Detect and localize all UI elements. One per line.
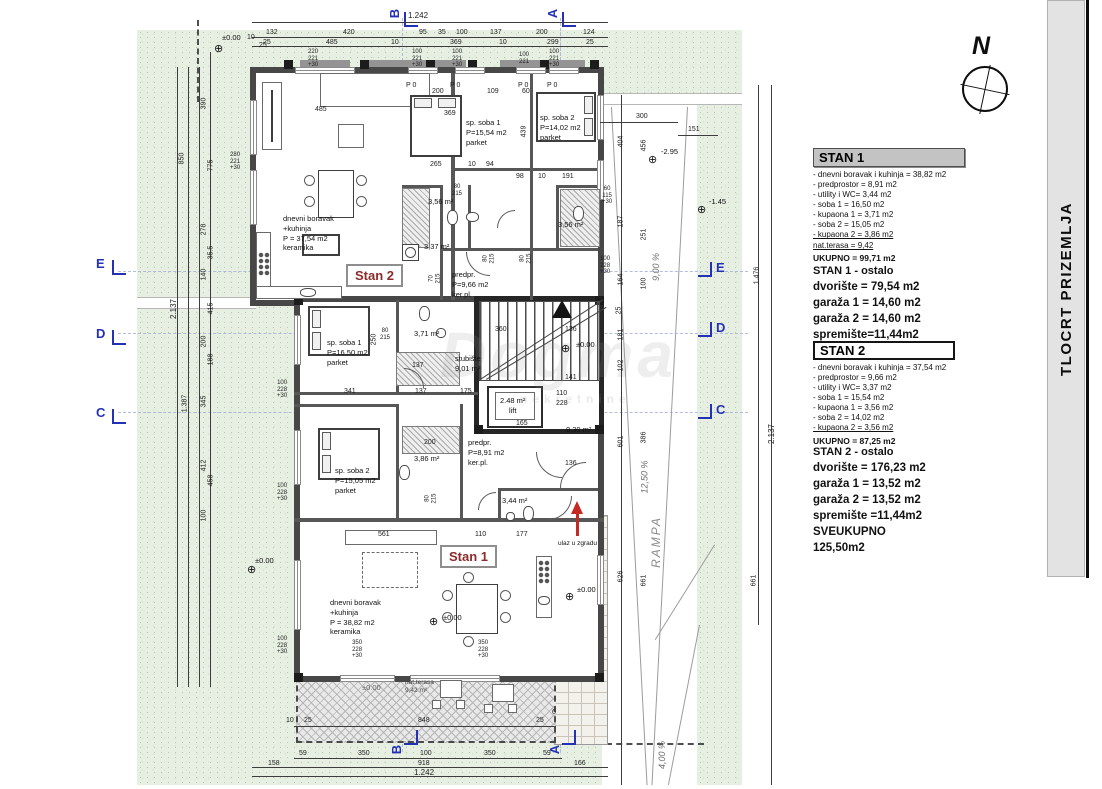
toilet xyxy=(447,210,458,225)
column xyxy=(294,673,303,682)
stan2-total: UKUPNO = 87,25 m2 xyxy=(813,436,1033,446)
stan1-item: - dnevni boravak i kuhinja = 38,82 m2 xyxy=(813,170,1033,180)
parapet-stack: 100221+30 xyxy=(549,49,559,69)
dim-label: 2.137 xyxy=(170,299,178,319)
chair xyxy=(463,636,474,647)
dim-label: 102 xyxy=(617,360,624,372)
partition-wall xyxy=(498,488,501,521)
pillow xyxy=(584,118,593,136)
door-size-stack: 70215 xyxy=(429,273,442,283)
room-label-bedroom2-stan2: sp. soba 2 P=14,02 m2 parket xyxy=(540,113,581,142)
dim-label: 251 xyxy=(640,229,647,241)
kitchen-counter xyxy=(256,286,342,299)
chair xyxy=(442,590,453,601)
room-label-bedroom1-stan1: sp. soba 1 P=16,50 m2 parket xyxy=(327,338,368,367)
north-label: N xyxy=(972,32,990,61)
level-value: -1.45 xyxy=(709,197,726,206)
section-bracket xyxy=(112,330,126,345)
door-size-stack: 80215 xyxy=(483,253,496,263)
slope-label-400: 4,00 % xyxy=(657,741,667,769)
dim-label: 98 xyxy=(516,173,524,180)
dim-line xyxy=(600,122,678,123)
chair xyxy=(304,175,315,186)
stove-burners xyxy=(538,560,550,584)
dim-label: 137 xyxy=(412,362,424,369)
dim-label: 250 xyxy=(370,334,377,346)
chair xyxy=(463,572,474,583)
window xyxy=(250,170,257,225)
section-bracket xyxy=(698,262,712,277)
stan2-item: - utility i WC= 3,37 m2 xyxy=(813,383,1033,393)
window xyxy=(294,430,301,485)
pillow xyxy=(584,96,593,114)
dim-label: 59 xyxy=(543,750,551,757)
stan2-ostalo-item: SVEUKUPNO xyxy=(813,526,1033,538)
dim-label: 10 xyxy=(468,161,476,168)
sheet-title: TLOCRT PRIZEMLJA xyxy=(1058,202,1075,376)
dim-line xyxy=(188,67,189,687)
window xyxy=(294,560,301,630)
dim-label: 299 xyxy=(547,39,559,46)
parapet-stack: 100221+30 xyxy=(412,49,422,69)
parapet-stack: 60115+30 xyxy=(602,186,612,206)
toilet xyxy=(419,306,430,321)
dim-label: 175 xyxy=(460,388,472,395)
level-symbol: ⊕ xyxy=(648,155,657,166)
dim-line xyxy=(294,726,556,727)
dim-label: 100 xyxy=(456,29,468,36)
dim-label: 300 xyxy=(636,113,648,120)
level-symbol: ⊕ xyxy=(561,344,570,355)
parapet-stack: 100221 xyxy=(519,52,529,65)
dim-label: 60 xyxy=(522,88,530,95)
dim-label: 191 xyxy=(562,173,574,180)
window xyxy=(597,95,604,140)
column xyxy=(590,60,599,69)
dim-label: 137 xyxy=(415,388,427,395)
stan1-ostalo-title: STAN 1 - ostalo xyxy=(813,265,1033,277)
section-marker-d-left: D xyxy=(96,326,105,341)
stan2-ostalo-title: STAN 2 - ostalo xyxy=(813,446,1033,458)
title-bar-edge-line xyxy=(1086,0,1089,578)
dim-label: 94 xyxy=(486,161,494,168)
washer-drum xyxy=(405,247,416,258)
chair xyxy=(304,196,315,207)
column xyxy=(595,425,604,434)
ramp-label: RAMPA xyxy=(649,516,663,568)
door-size-stack: 80215 xyxy=(380,328,390,341)
dim-label: 110 xyxy=(475,531,486,538)
stan1-item: - utility i WC= 3,44 m2 xyxy=(813,190,1033,200)
level-value: ±0.00 xyxy=(362,683,381,692)
room-label-hall-stan2: predpr. P=9,66 m2 ker.pl. xyxy=(452,270,488,299)
coffee-table xyxy=(338,124,364,148)
door-size-stack: 80215 xyxy=(520,253,533,263)
dim-label: 10 xyxy=(247,34,255,41)
dim-label: 177 xyxy=(516,531,528,538)
dim-label: 341 xyxy=(344,388,356,395)
dim-label: 100 xyxy=(200,510,207,522)
dim-label: 1.476 xyxy=(753,267,760,285)
dim-line xyxy=(758,85,759,625)
path-band-right xyxy=(602,93,742,105)
sofa xyxy=(345,530,437,545)
dim-label: 420 xyxy=(343,29,355,36)
toilet xyxy=(523,506,534,521)
stan2-panel: STAN 2 - dnevni boravak i kuhinja = 37,5… xyxy=(813,341,1033,554)
partition-wall xyxy=(530,73,533,250)
stan1-ostalo-item: spremište=11,44m2 xyxy=(813,329,1033,341)
dim-label: 166 xyxy=(574,760,586,767)
entrance-arrow-head xyxy=(571,501,583,514)
stan2-item: - soba 2 = 14,02 m2 xyxy=(813,413,1033,423)
dim-label: 25 xyxy=(536,717,544,724)
dim-label: 200 xyxy=(200,336,207,348)
stan2-ostalo-item: spremište =11,44m2 xyxy=(813,510,1033,522)
dim-label: 661 xyxy=(640,575,647,587)
room-label-bath2-stan2: 3,56 m² xyxy=(558,220,583,230)
dim-label: 151 xyxy=(688,126,700,133)
window xyxy=(597,555,604,605)
parapet-stack: 100228+30 xyxy=(600,256,610,276)
dim-label: 1.242 xyxy=(408,12,428,20)
toilet xyxy=(573,206,584,221)
dim-label: 35.5 xyxy=(207,246,214,260)
dim-label: 661 xyxy=(750,575,757,587)
patio-chair xyxy=(456,700,465,709)
dining-table xyxy=(456,584,498,634)
sill-stack: 350228+30 xyxy=(352,640,362,660)
pillow xyxy=(322,455,331,473)
section-marker-e-right: E xyxy=(716,260,725,275)
window xyxy=(294,315,301,365)
dim-label: 228 xyxy=(556,400,568,407)
dim-label: 200 xyxy=(432,88,444,95)
pillow xyxy=(414,98,432,108)
level-symbol: ⊕ xyxy=(697,205,706,216)
pillow xyxy=(438,98,456,108)
room-label-hall-stan1: predpr. P=8,91 m2 ker.pl. xyxy=(468,438,504,467)
stan1-item: - kupaona 1 = 3,71 m2 xyxy=(813,210,1033,220)
stan2-ostalo-item: dvorište = 176,23 m2 xyxy=(813,462,1033,474)
dim-label: 165 xyxy=(516,420,528,427)
partition-wall xyxy=(451,168,598,171)
column xyxy=(474,425,483,434)
dim-label: 775 xyxy=(207,160,214,172)
pillow xyxy=(312,332,321,350)
dim-line xyxy=(210,52,211,687)
pillow xyxy=(312,310,321,328)
sill-stack: 350228+30 xyxy=(478,640,488,660)
dim-label: 386 xyxy=(640,432,647,444)
p0-label: P 0 xyxy=(406,82,416,89)
column xyxy=(360,60,369,69)
room-label-bath1-stan2: 3,56 m² xyxy=(428,197,453,207)
section-bracket xyxy=(112,409,126,424)
dim-label: 35 xyxy=(438,29,446,36)
parapet-stack: 100228+30 xyxy=(277,636,287,656)
dim-label: 140 xyxy=(200,269,207,281)
dim-label: 25 xyxy=(615,307,622,315)
level-symbol: ⊕ xyxy=(247,565,256,576)
stan2-item: - soba 1 = 15,54 m2 xyxy=(813,393,1033,403)
stan1-item: - soba 1 = 16,50 m2 xyxy=(813,200,1033,210)
room-label-bedroom1-stan2: sp. soba 1 P=15,54 m2 parket xyxy=(466,118,507,147)
partition-wall xyxy=(498,488,598,491)
stan2-item: - dnevni boravak i kuhinja = 37,54 m2 xyxy=(813,363,1033,373)
dim-label: 350 xyxy=(484,750,496,757)
level-value: ±0.00 xyxy=(577,585,596,594)
rug xyxy=(362,552,418,588)
room-label-living-stan1: dnevni boravak +kuhinja P = 38,82 m2 ker… xyxy=(330,598,381,637)
room-label-living-stan2: dnevni boravak +kuhinja P = 37,54 m2 ker… xyxy=(283,214,334,253)
stan1-item: - predprostor = 8,91 m2 xyxy=(813,180,1033,190)
level-value: ±0.00 xyxy=(255,556,274,565)
section-marker-c-left: C xyxy=(96,405,105,420)
column xyxy=(284,60,293,69)
dim-line xyxy=(252,46,608,47)
partition-wall xyxy=(294,392,478,395)
dim-label: 10 xyxy=(391,39,399,46)
dim-label: 59 xyxy=(299,750,307,757)
dim-label: 390 xyxy=(200,98,207,110)
stan1-item: - kupaona 2 = 3,86 m2 xyxy=(813,230,1033,240)
room-label-bedroom2-stan1: sp. soba 2 P=15,05 m2 parket xyxy=(335,466,376,495)
room-label-stairs: stubište 9,01 m² xyxy=(455,354,481,374)
dim-label: 137 xyxy=(490,29,502,36)
sheet-title-bar: TLOCRT PRIZEMLJA xyxy=(1047,0,1085,577)
entrance-label: ulaz u zgradu xyxy=(558,540,597,548)
path-band-left xyxy=(137,297,256,309)
stan1-item: - soba 2 = 15,05 m2 xyxy=(813,220,1033,230)
door-size-stack: 80215 xyxy=(452,184,462,197)
dim-label: 10 xyxy=(499,39,507,46)
dim-label: 369 xyxy=(444,110,456,117)
chair xyxy=(500,590,511,601)
dim-label: 265 xyxy=(430,161,442,168)
dim-line xyxy=(678,135,718,136)
level-value: ±0.00 xyxy=(443,613,462,622)
dim-label: 458 xyxy=(207,475,214,487)
level-value: -2.95 xyxy=(661,147,678,156)
section-bracket xyxy=(112,260,126,275)
room-label-wc-stan1: 3,44 m² xyxy=(502,496,527,506)
section-marker-a-top: A xyxy=(545,9,560,18)
partition-wall xyxy=(460,404,463,520)
dim-label: 439 xyxy=(520,126,527,138)
kitchen-sink xyxy=(538,596,550,605)
dim-label: 200 xyxy=(536,29,548,36)
window xyxy=(516,67,546,74)
stan1-ostalo-item: garaža 1 = 14,60 m2 xyxy=(813,297,1033,309)
dim-label: 456 xyxy=(640,140,647,152)
dim-label: 110 xyxy=(556,390,567,397)
dim-label: 360 xyxy=(495,326,507,333)
stan2-item: - predprostor = 9,66 m2 xyxy=(813,373,1033,383)
stan1-item: nat.terasa = 9,42 xyxy=(813,241,1033,251)
slope-label-1250: 12,50 % xyxy=(640,460,650,493)
patio-table xyxy=(440,680,462,698)
apartment-label-stan2: Stan 2 xyxy=(346,264,403,287)
partition-wall xyxy=(556,185,559,248)
door-size-stack: 80215 xyxy=(425,493,438,503)
dim-label: 850 xyxy=(178,153,185,165)
level-value: ±0.00 xyxy=(576,340,595,349)
parapet-stack: 280221+30 xyxy=(230,152,240,172)
dim-label: 100 xyxy=(640,278,647,290)
dim-label: 10 xyxy=(286,717,294,724)
p0-label: P 0 xyxy=(547,82,557,89)
section-bracket xyxy=(562,12,576,27)
chair xyxy=(356,175,367,186)
entrance-arrow-stem xyxy=(576,512,579,536)
dining-table xyxy=(318,170,354,218)
section-marker-c-right: C xyxy=(716,402,725,417)
dim-label: 485 xyxy=(326,39,338,46)
dim-label: 601 xyxy=(617,436,624,448)
stan2-ostalo-item: garaža 2 = 13,52 m2 xyxy=(813,494,1033,506)
partition-wall xyxy=(396,404,399,518)
section-marker-b-top: B xyxy=(387,9,402,18)
parapet-stack: 220221+30 xyxy=(308,49,318,69)
section-marker-b-bottom: B xyxy=(389,745,404,754)
dim-label: 132 xyxy=(266,29,278,36)
dim-label: 6 xyxy=(552,709,556,716)
p0-label: P 0 xyxy=(450,82,460,89)
patio-chair xyxy=(484,704,493,713)
room-label-bath2-stan1: 3,86 m² xyxy=(414,454,439,464)
patio-chair xyxy=(508,704,517,713)
parapet-stack: 100228+30 xyxy=(277,380,287,400)
dim-label: 626 xyxy=(617,571,624,583)
dim-label: 561 xyxy=(378,531,390,538)
stan1-ostalo-item: dvorište = 79,54 m2 xyxy=(813,281,1033,293)
dim-label: 404 xyxy=(617,136,624,148)
level-value: ±0.00 xyxy=(222,33,241,42)
dim-label: 2.137 xyxy=(768,424,776,444)
stan2-item: - kupaona 1 = 3,56 m2 xyxy=(813,403,1033,413)
window xyxy=(250,100,257,155)
section-bracket xyxy=(404,730,418,745)
section-bracket xyxy=(562,730,576,745)
dim-label: 369 xyxy=(450,39,462,46)
floor-plan-sheet: Dogma nekretnine dnevni boravak +kuhinja… xyxy=(0,0,1102,789)
dim-label: 200 xyxy=(424,439,436,446)
wardrobe-handle xyxy=(271,90,273,142)
dim-label: 25 xyxy=(259,42,267,49)
sink xyxy=(466,212,479,222)
dim-label: 412 xyxy=(200,460,207,472)
patio-chair xyxy=(432,700,441,709)
bath-tile-hatch xyxy=(402,188,430,248)
room-label-utility-stan2: 3,37 m² xyxy=(424,242,449,252)
dim-label: 350 xyxy=(358,750,370,757)
column xyxy=(595,673,604,682)
stan2-ostalo-item: 125,50m2 xyxy=(813,542,1033,554)
kitchen-sink xyxy=(300,288,316,297)
chair xyxy=(500,612,511,623)
patio-table xyxy=(492,684,514,702)
slope-label-900: 9,00 % xyxy=(651,253,661,281)
dim-label: 345 xyxy=(200,396,207,408)
dim-label: 141 xyxy=(565,374,577,381)
section-bracket xyxy=(698,322,712,337)
dim-label: 95 xyxy=(419,29,427,36)
dim-label: 1.387 xyxy=(181,395,188,413)
dim-label: 1.242 xyxy=(414,769,434,777)
section-marker-d-right: D xyxy=(716,320,725,335)
stan1-total: UKUPNO = 99,71 m2 xyxy=(813,253,1033,263)
dim-label: 10 xyxy=(538,173,546,180)
stan2-title: STAN 2 xyxy=(813,341,955,360)
stan1-title: STAN 1 xyxy=(813,148,965,167)
dim-label: 25 xyxy=(586,39,594,46)
dim-label: 485 xyxy=(315,106,327,113)
dim-label: 164 xyxy=(617,274,624,286)
dim-line xyxy=(252,37,608,38)
pillow xyxy=(322,432,331,450)
room-label-terrace: nat.terasa 9,42 m² xyxy=(405,679,434,696)
room-label-open-area: 8,30 m² xyxy=(566,425,591,435)
dim-line xyxy=(252,22,608,23)
dim-label: 278 xyxy=(200,224,207,236)
dim-label: 181 xyxy=(617,329,624,341)
dim-line xyxy=(294,758,562,759)
dim-label: 415 xyxy=(207,303,214,315)
partition-wall xyxy=(294,404,399,407)
room-label-lift: 2.48 m² lift xyxy=(500,396,525,416)
dim-label: 918 xyxy=(418,760,430,767)
parapet-stack: 100228+30 xyxy=(277,483,287,503)
level-symbol: ⊕ xyxy=(565,592,574,603)
toilet xyxy=(399,465,410,480)
room-label-bath1-stan1: 3,71 m² xyxy=(414,329,439,339)
dim-line xyxy=(199,67,200,687)
dim-label: 136 xyxy=(565,460,577,467)
dim-label: 100 xyxy=(420,750,432,757)
level-symbol: ⊕ xyxy=(429,617,438,628)
dim-label: 187 xyxy=(617,216,624,228)
level-symbol: ⊕ xyxy=(214,44,223,55)
dim-label: 848 xyxy=(418,717,430,724)
section-marker-e-left: E xyxy=(96,256,105,271)
dim-label: 124 xyxy=(583,29,595,36)
stan2-ostalo-item: garaža 1 = 13,52 m2 xyxy=(813,478,1033,490)
parapet-stack: 100221+30 xyxy=(452,49,462,69)
partition-wall xyxy=(440,248,598,251)
dim-label: 25 xyxy=(304,717,312,724)
chair xyxy=(356,196,367,207)
dim-label: 109 xyxy=(487,88,499,95)
dim-label: 158 xyxy=(268,760,280,767)
apartment-label-stan1: Stan 1 xyxy=(440,545,497,568)
sink xyxy=(506,512,515,521)
stan1-panel: STAN 1 - dnevni boravak i kuhinja = 38,8… xyxy=(813,148,1033,357)
dim-label: 188 xyxy=(207,354,214,366)
stan1-ostalo-item: garaža 2 = 14,60 m2 xyxy=(813,313,1033,325)
partition-wall xyxy=(294,518,604,522)
watermark-sub: nekretnine xyxy=(520,392,631,406)
stair-direction-arrow xyxy=(552,300,572,318)
dim-label: 136 xyxy=(565,326,577,333)
stan2-item: - kupaona 2 = 3,56 m2 xyxy=(813,423,1033,433)
stove-burners xyxy=(258,252,270,276)
window xyxy=(340,675,395,682)
section-bracket xyxy=(698,404,712,419)
